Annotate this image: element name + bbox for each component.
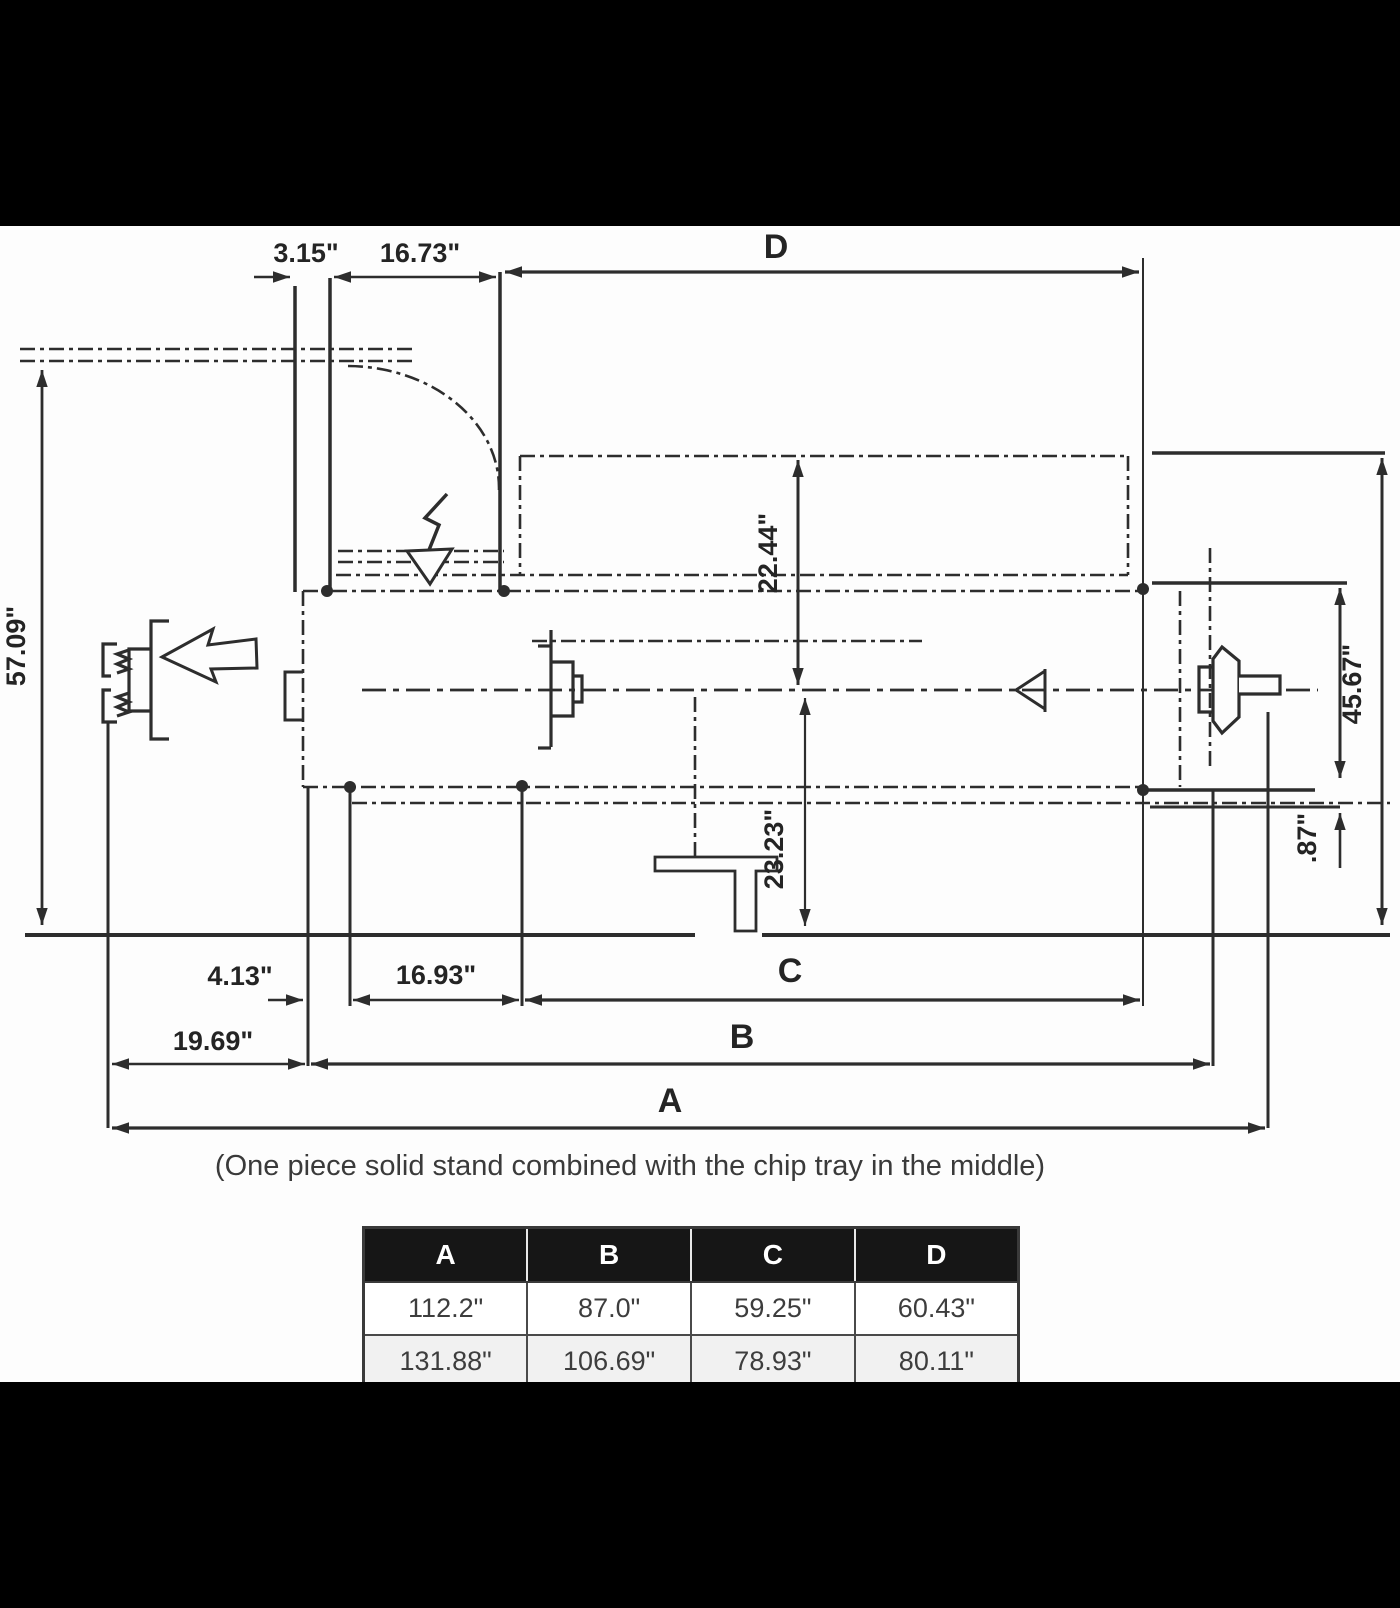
door-swing-arc: [348, 366, 499, 490]
letterbox-top: [0, 0, 1400, 226]
col-header-c: C: [691, 1228, 855, 1283]
letterbox-bottom: [0, 1382, 1400, 1608]
cell-b1: 87.0": [527, 1282, 691, 1335]
dim-label-span-b: B: [730, 1018, 755, 1056]
drawing-caption: (One piece solid stand combined with the…: [70, 1150, 1190, 1183]
dim-label-center-to-floor: 23.23": [759, 809, 789, 889]
col-header-b: B: [527, 1228, 691, 1283]
table-header-row: A B C D: [364, 1228, 1019, 1283]
pull-direction-arrow-icon: [162, 629, 257, 682]
cell-c2: 78.93": [691, 1335, 855, 1389]
machine-phantom-outline: [20, 349, 1390, 857]
extension-lines: [108, 258, 1268, 1128]
dim-label-center-to-top: 22.44": [753, 513, 783, 593]
dim-label-span-c: C: [778, 952, 803, 990]
dim-label-bed-lip: .87": [1292, 813, 1322, 863]
cell-a2: 131.88": [364, 1335, 528, 1389]
dim-label-door-top: 16.73": [380, 238, 460, 268]
table-row: 112.2" 87.0" 59.25" 60.43": [364, 1282, 1019, 1335]
cell-b2: 106.69": [527, 1335, 691, 1389]
leadscrew-handwheel-icon: [103, 621, 169, 739]
dim-label-height-left: 57.09": [1, 606, 31, 686]
dim-label-door-bottom: 16.93": [396, 960, 476, 990]
dimension-spec-table: A B C D 112.2" 87.0" 59.25" 60.43" 131.8…: [362, 1226, 1020, 1390]
power-cable-arrow-icon: [407, 494, 452, 584]
dimension-drawing-page: 3.15" 16.73" D 57.09" 22.44" 23.23" 45.6…: [0, 226, 1400, 1382]
dim-label-stand-offset: 19.69": [173, 1026, 253, 1056]
dim-label-offset-bottom: 4.13": [207, 961, 272, 991]
table-row: 131.88" 106.69" 78.93" 80.11": [364, 1335, 1019, 1389]
cell-d2: 80.11": [855, 1335, 1019, 1389]
cell-a1: 112.2": [364, 1282, 528, 1335]
bed-left-notch: [285, 672, 303, 720]
dim-label-span-d: D: [764, 228, 789, 266]
col-header-d: D: [855, 1228, 1019, 1283]
dim-label-span-a: A: [658, 1082, 683, 1120]
col-header-a: A: [364, 1228, 528, 1283]
lathe-dimension-drawing: 3.15" 16.73" D 57.09" 22.44" 23.23" 45.6…: [0, 226, 1400, 1382]
cell-d1: 60.43": [855, 1282, 1019, 1335]
screenshot-stage: 3.15" 16.73" D 57.09" 22.44" 23.23" 45.6…: [0, 0, 1400, 1608]
dim-label-offset-top: 3.15": [273, 238, 338, 268]
cell-c1: 59.25": [691, 1282, 855, 1335]
dim-label-height-right: 45.67": [1337, 644, 1367, 724]
